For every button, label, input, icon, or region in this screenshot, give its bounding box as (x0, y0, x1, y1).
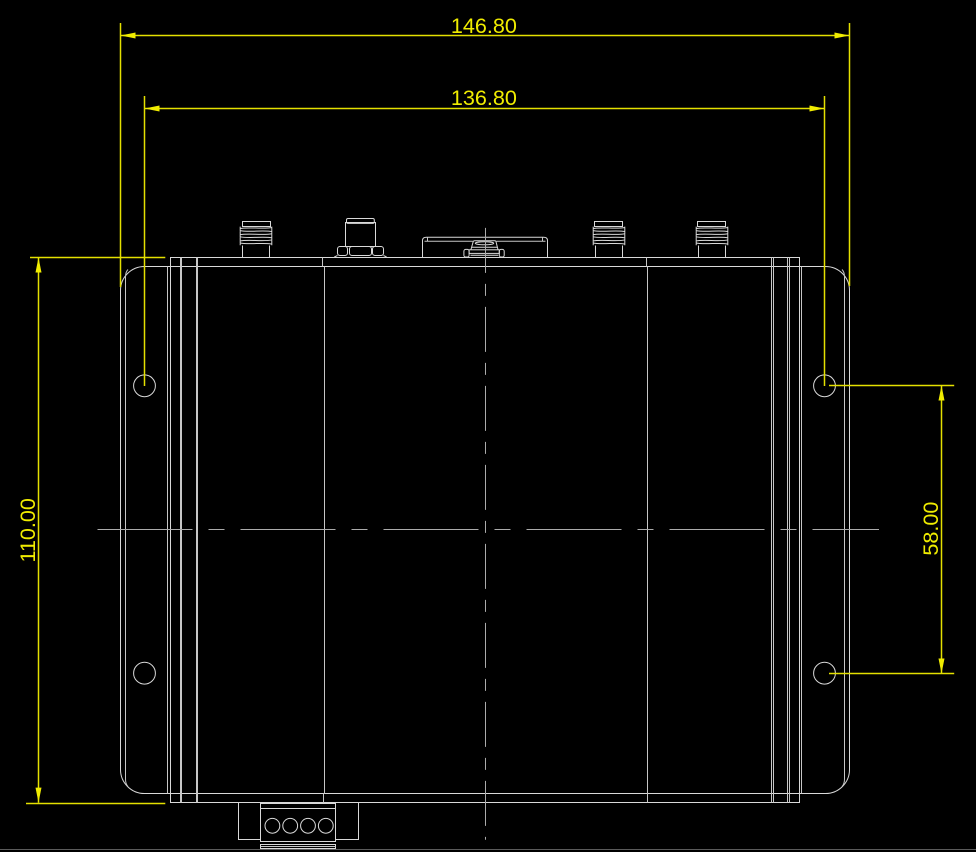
svg-text:58.00: 58.00 (918, 502, 943, 556)
svg-text:136.80: 136.80 (451, 85, 517, 110)
svg-text:146.80: 146.80 (451, 13, 517, 38)
svg-text:110.00: 110.00 (15, 498, 40, 562)
